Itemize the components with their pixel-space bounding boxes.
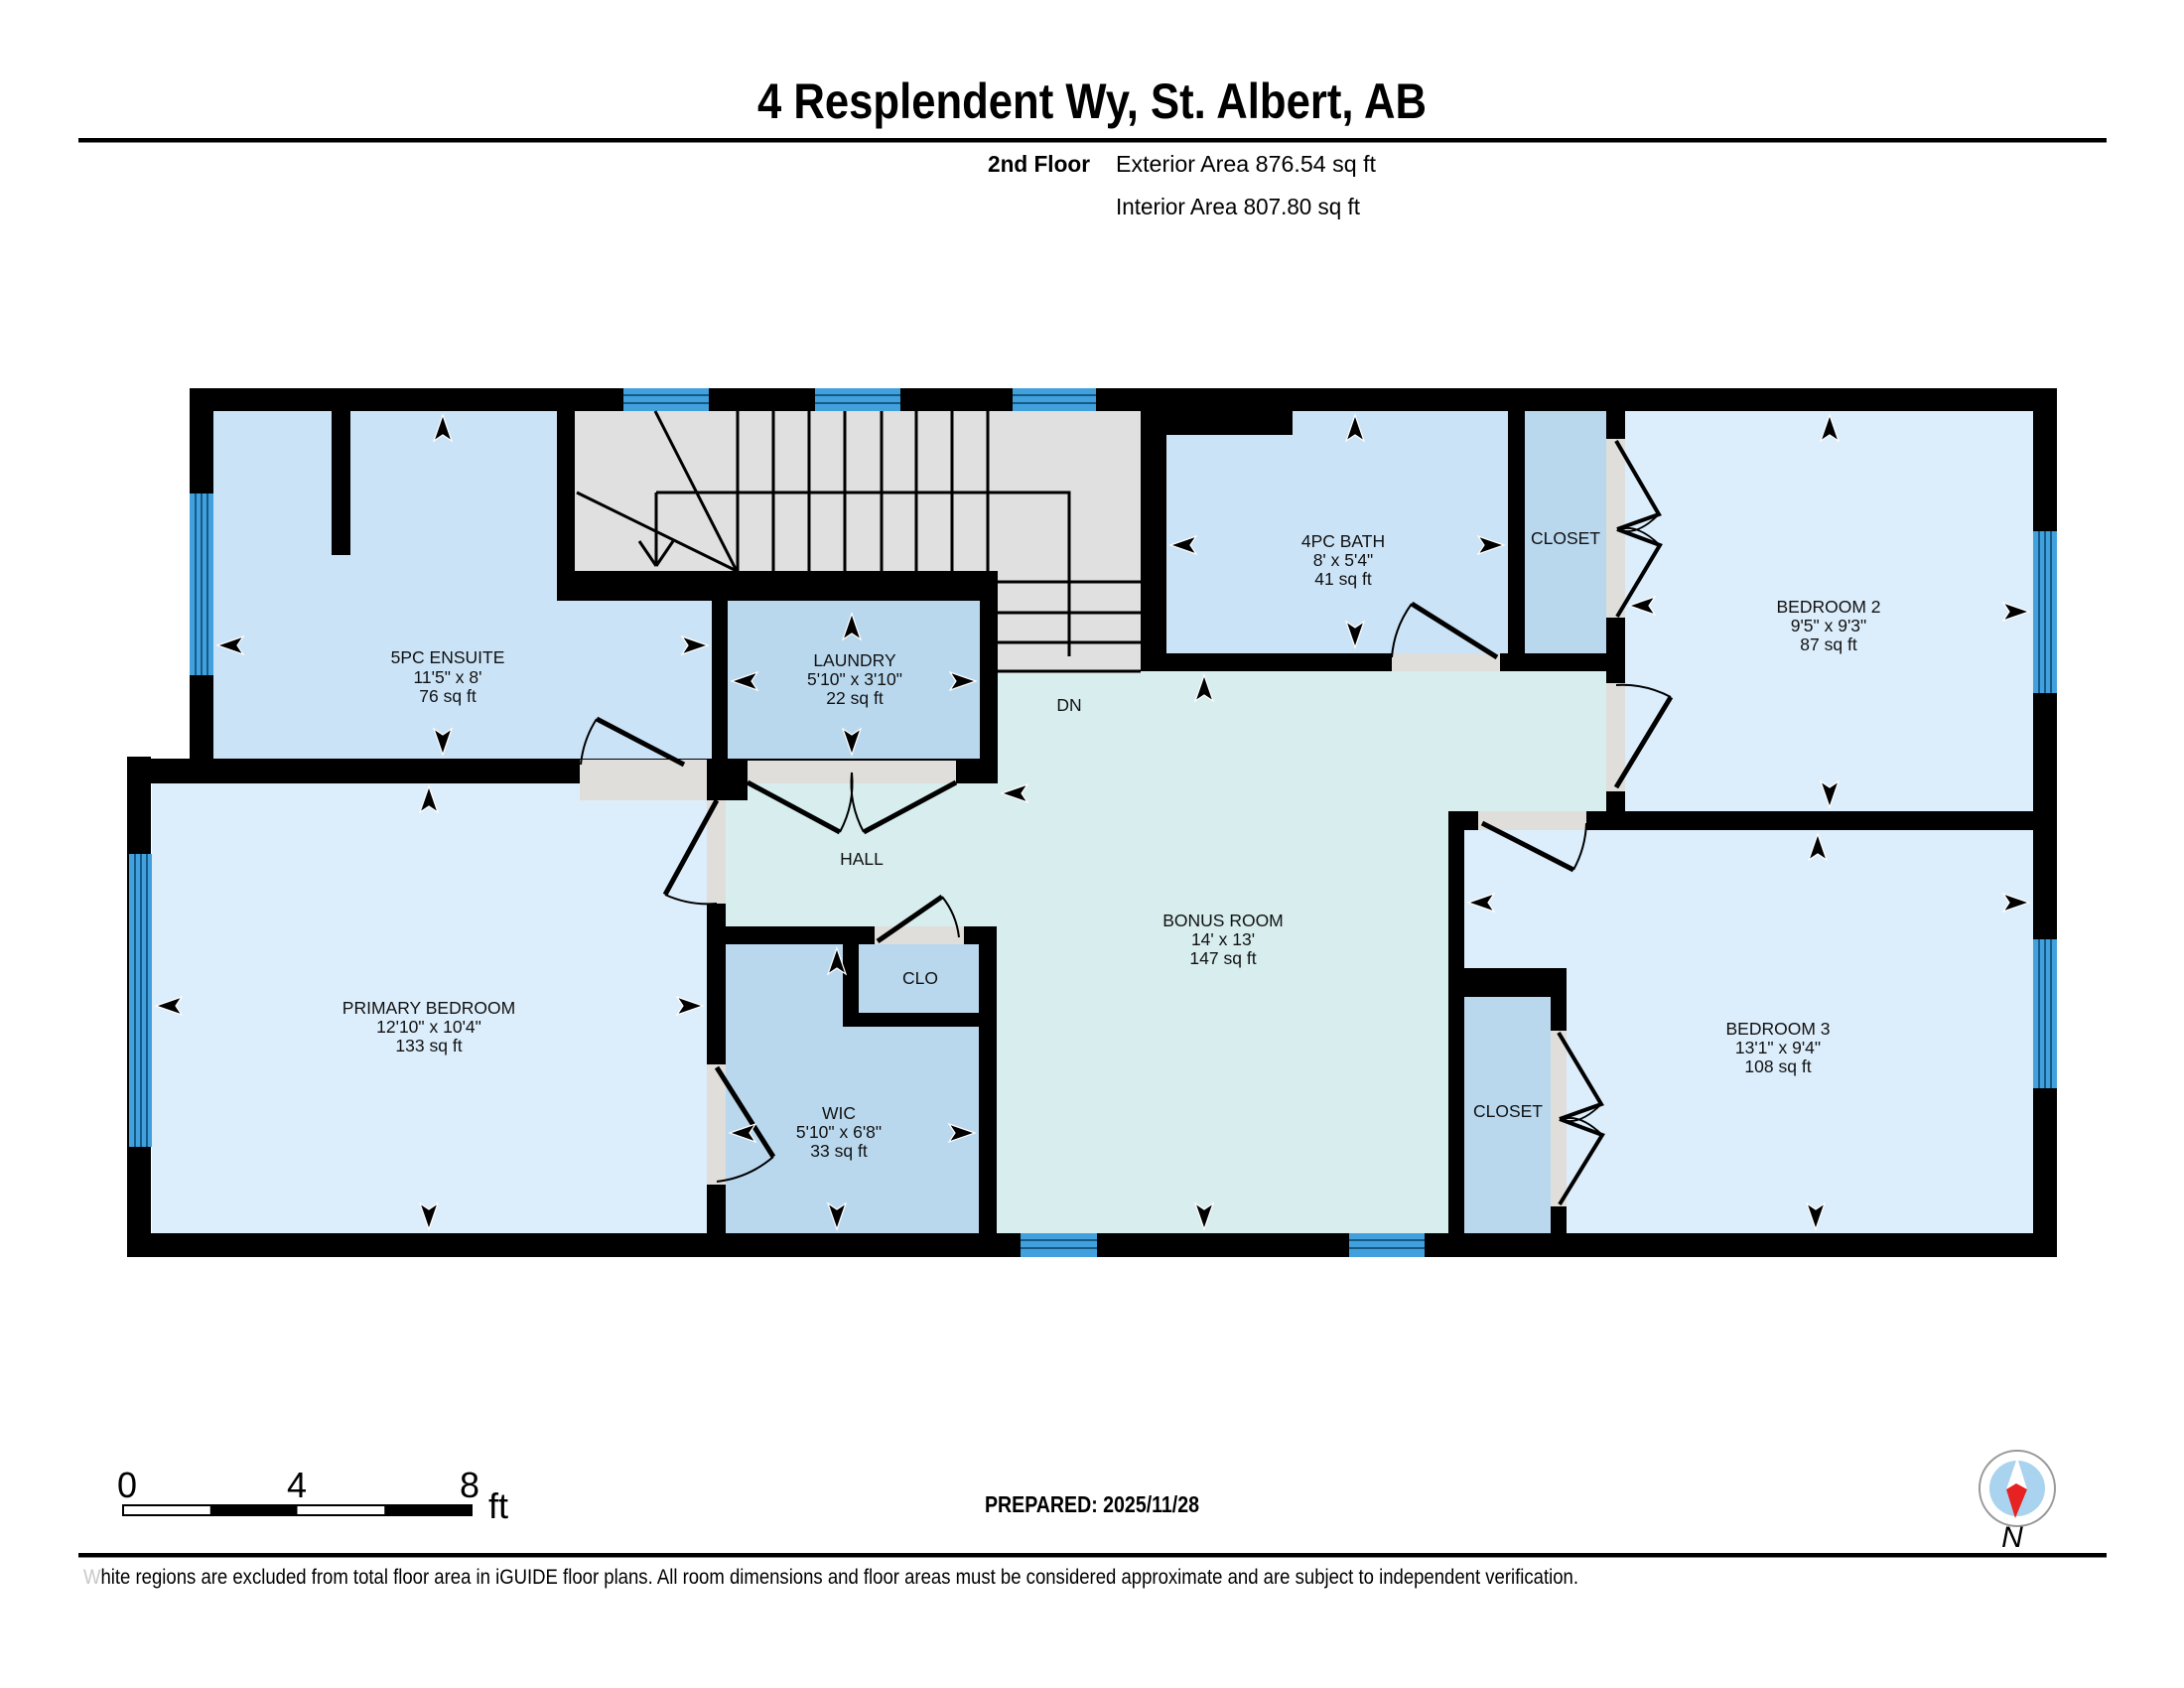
svg-text:PRIMARY BEDROOM: PRIMARY BEDROOM [342, 998, 515, 1018]
svg-text:12'10" x 10'4": 12'10" x 10'4" [376, 1017, 481, 1037]
svg-text:8: 8 [460, 1465, 479, 1505]
svg-text:133 sq ft: 133 sq ft [395, 1036, 462, 1055]
svg-text:2nd Floor: 2nd Floor [988, 151, 1090, 177]
svg-text:108 sq ft: 108 sq ft [1744, 1056, 1811, 1076]
svg-text:DN: DN [1056, 695, 1081, 715]
svg-text:13'1" x 9'4": 13'1" x 9'4" [1735, 1038, 1821, 1057]
svg-text:HALL: HALL [840, 849, 884, 869]
svg-text:4 Resplendent Wy, St. Albert,: 4 Resplendent Wy, St. Albert, AB [757, 73, 1427, 129]
svg-text:11'5" x 8': 11'5" x 8' [413, 667, 481, 687]
svg-text:41 sq ft: 41 sq ft [1314, 569, 1372, 589]
svg-text:9'5" x 9'3": 9'5" x 9'3" [1791, 616, 1867, 635]
svg-text:BEDROOM 2: BEDROOM 2 [1776, 597, 1880, 617]
svg-text:8' x 5'4": 8' x 5'4" [1313, 550, 1374, 570]
svg-text:22 sq ft: 22 sq ft [826, 688, 884, 708]
svg-text:WIC: WIC [822, 1103, 856, 1123]
svg-text:Exterior Area 876.54 sq ft: Exterior Area 876.54 sq ft [1116, 151, 1377, 177]
svg-text:N: N [2001, 1521, 2023, 1554]
svg-text:5'10" x 3'10": 5'10" x 3'10" [807, 669, 902, 689]
svg-text:87 sq ft: 87 sq ft [1800, 634, 1857, 654]
svg-text:76 sq ft: 76 sq ft [419, 686, 477, 706]
svg-text:White regions are excluded fro: White regions are excluded from total fl… [83, 1566, 1578, 1589]
svg-text:LAUNDRY: LAUNDRY [813, 650, 896, 670]
svg-text:147 sq ft: 147 sq ft [1189, 948, 1256, 968]
svg-text:PREPARED: 2025/11/28: PREPARED: 2025/11/28 [985, 1491, 1199, 1517]
svg-text:BEDROOM 3: BEDROOM 3 [1725, 1019, 1830, 1039]
svg-text:5PC ENSUITE: 5PC ENSUITE [391, 647, 505, 667]
svg-text:CLOSET: CLOSET [1473, 1101, 1543, 1121]
svg-text:4: 4 [287, 1465, 307, 1505]
svg-text:Interior Area 807.80 sq ft: Interior Area 807.80 sq ft [1116, 194, 1361, 219]
svg-text:ft: ft [488, 1485, 508, 1526]
svg-text:CLOSET: CLOSET [1531, 528, 1600, 548]
svg-text:33 sq ft: 33 sq ft [810, 1141, 868, 1161]
svg-text:0: 0 [117, 1465, 137, 1505]
svg-text:BONUS ROOM: BONUS ROOM [1162, 911, 1284, 930]
svg-text:14' x 13': 14' x 13' [1191, 929, 1255, 949]
svg-text:5'10" x 6'8": 5'10" x 6'8" [796, 1122, 882, 1142]
svg-text:4PC BATH: 4PC BATH [1301, 531, 1385, 551]
svg-text:CLO: CLO [902, 968, 938, 988]
